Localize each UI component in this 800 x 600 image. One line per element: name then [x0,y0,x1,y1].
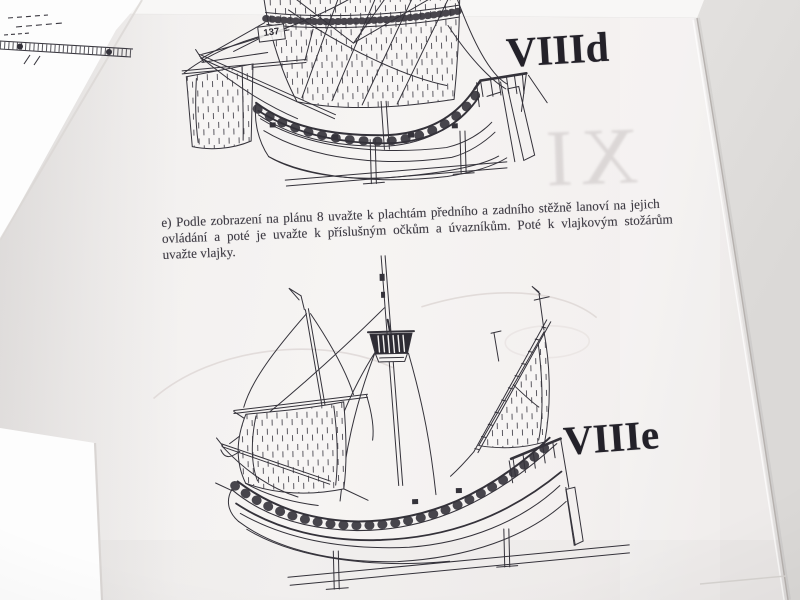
flag-pole [491,331,502,361]
mainmast [379,255,403,485]
figure-label-viiie: VIIIe [562,414,660,462]
crows-nest [368,319,415,362]
under-page-edge-bottom-left [0,428,102,600]
stern-castle [474,73,547,113]
mainsail [263,0,463,110]
figure-label-viiid: VIIId [505,27,610,75]
part-ref-tag: 137 [257,23,286,42]
lateen-sail [476,332,551,449]
rudder [487,81,535,162]
ship-drawing-viiid [142,0,558,210]
mizzen-topmast [532,286,550,330]
photographed-manual-page: XI [0,0,800,600]
rudder [566,487,583,545]
ship-drawing-viiie [90,242,643,600]
display-stand [287,526,630,590]
